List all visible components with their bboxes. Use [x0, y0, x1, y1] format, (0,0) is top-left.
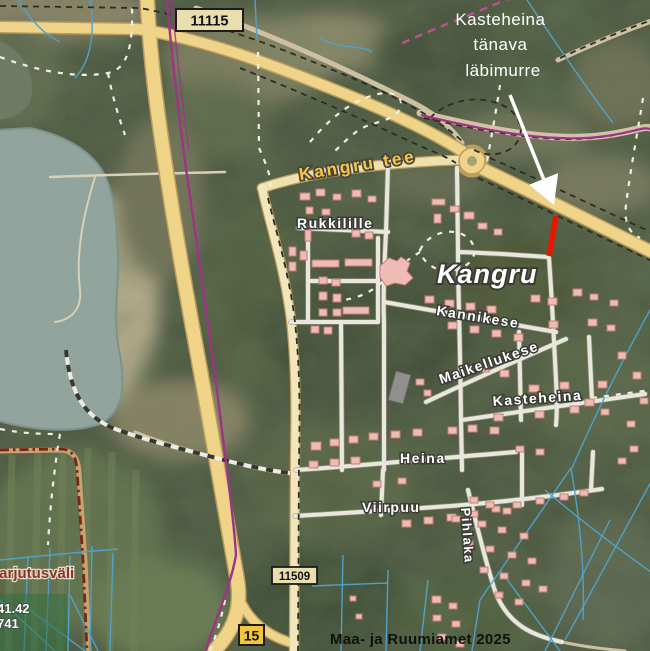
- parcel-number-1: 41.42: [0, 601, 30, 616]
- route-badge-15-label: 15: [244, 628, 260, 644]
- map-viewport[interactable]: 11115 11509 15 Kangru tee Rukkilille Kan…: [0, 0, 650, 651]
- route-badge-11509-label: 11509: [279, 571, 310, 583]
- map-attribution: Maa- ja Ruumiamet 2025: [330, 631, 511, 648]
- annotation-line-3: läbimurre: [465, 61, 540, 80]
- street-label-heina: Heina: [400, 450, 446, 466]
- route-badge-11509: 11509: [272, 567, 317, 584]
- map-canvas[interactable]: 11115 11509 15 Kangru tee Rukkilille Kan…: [0, 0, 650, 651]
- annotation-line-2: tänava: [473, 35, 527, 54]
- parcel-number-2: 741: [0, 616, 19, 631]
- street-label-rukkilille: Rukkilille: [297, 215, 373, 231]
- route-badge-15: 15: [239, 625, 264, 645]
- photo-grain: [0, 0, 650, 651]
- place-label-kangru: Kangru: [437, 259, 538, 289]
- route-badge-11115: 11115: [176, 9, 243, 31]
- annotation-line-1: Kasteheina: [455, 10, 545, 29]
- street-label-viirpuu: Viirpuu: [362, 499, 420, 515]
- area-label-training-ground: harjutusväli: [0, 565, 74, 582]
- route-badge-11115-label: 11115: [191, 14, 229, 30]
